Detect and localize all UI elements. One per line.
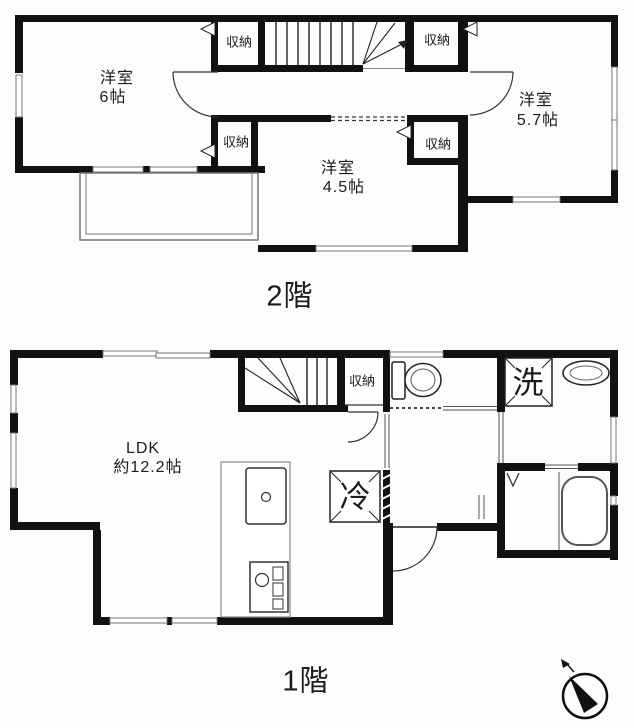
room-center-size: 4.5帖 (323, 180, 365, 196)
stairs-1f-icon (245, 358, 327, 405)
balcony-outline (80, 173, 258, 240)
floor2-walls (15, 15, 618, 252)
compass-north-icon (561, 659, 607, 718)
stairs-2f-icon (276, 22, 407, 65)
refrigerator-mark: 冷 (340, 482, 371, 513)
floorplan-drawing (0, 0, 634, 728)
ldk-name: LDK (126, 441, 160, 457)
floor2-caption: 2階 (266, 283, 313, 312)
ldk-size: 約12.2帖 (113, 460, 182, 476)
closet-2f-top-left: 収納 (226, 36, 252, 49)
kitchen-counter-icon (221, 462, 290, 617)
room-west-size: 6帖 (100, 90, 127, 106)
closet-2f-mid-left: 収納 (223, 136, 249, 149)
room-east-name: 洋室 (519, 93, 553, 109)
closet-2f-mid-right: 収納 (425, 138, 451, 151)
room-west-name: 洋室 (100, 71, 134, 87)
room-center-name: 洋室 (321, 161, 355, 177)
room-east-size: 5.7帖 (517, 113, 559, 129)
bathtub-icon (559, 472, 607, 550)
closet-1f: 収納 (349, 375, 375, 388)
floorplan-canvas: 洋室 6帖 洋室 5.7帖 洋室 4.5帖 収納 収納 収納 収納 2階 LDK… (0, 0, 634, 728)
laundry-mark: 洗 (513, 368, 544, 399)
toilet-icon (392, 362, 441, 399)
closet-2f-top-right: 収納 (424, 34, 450, 47)
floor1-caption: 1階 (282, 668, 329, 697)
vanity-sink-icon (563, 361, 609, 385)
floor2-doors (173, 69, 513, 121)
entrance-door-icon (393, 527, 437, 571)
